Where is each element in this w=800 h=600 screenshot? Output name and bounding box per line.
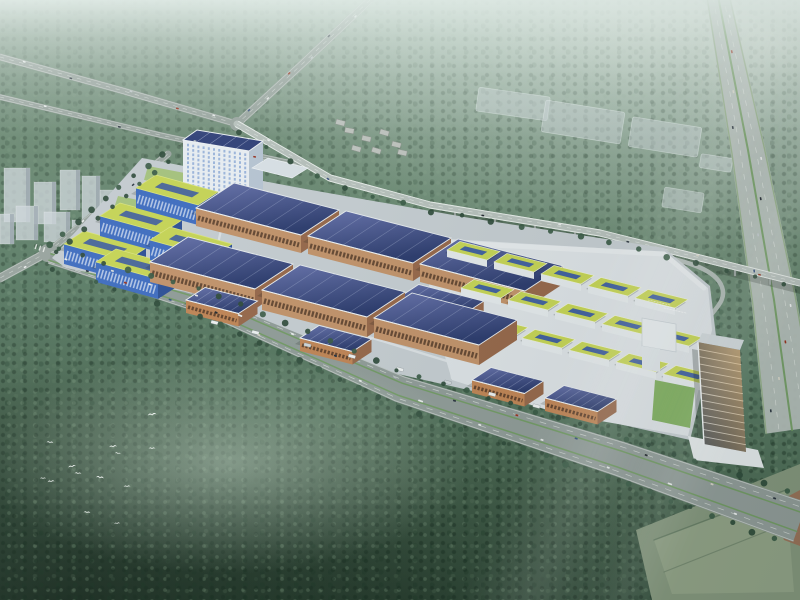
street-tree	[693, 260, 699, 266]
aerial-rendering: Aerial rendering of a solar-roofed indus…	[0, 0, 800, 600]
street-tree	[533, 410, 538, 415]
street-tree	[50, 267, 55, 272]
village-house	[351, 145, 361, 152]
street-tree	[584, 468, 589, 473]
city-block-shade	[34, 206, 38, 240]
street-tree	[95, 216, 100, 221]
street-tree	[428, 209, 434, 215]
street-tree	[125, 267, 132, 274]
street-tree	[257, 340, 263, 346]
street-tree	[724, 269, 728, 273]
street-tree	[237, 331, 243, 337]
village-house	[397, 149, 407, 156]
future-massing-block	[699, 154, 733, 173]
car	[770, 409, 772, 412]
village-house	[335, 119, 345, 126]
street-tree	[67, 238, 73, 244]
street-tree	[605, 474, 611, 480]
street-tree	[171, 280, 176, 285]
street-tree	[624, 437, 630, 443]
street-tree	[282, 320, 289, 327]
street-tree	[197, 286, 201, 290]
tower-sunlit-glass	[698, 342, 746, 452]
street-tree	[486, 396, 490, 400]
street-tree	[601, 431, 606, 436]
village-house	[345, 127, 355, 133]
street-tree	[216, 293, 222, 299]
street-tree	[197, 314, 203, 320]
street-tree	[460, 213, 465, 218]
street-tree	[647, 488, 653, 494]
street-tree	[715, 465, 722, 472]
annex-wing	[642, 346, 660, 372]
street-tree	[548, 229, 553, 234]
street-tree	[636, 246, 641, 251]
street-tree	[94, 280, 98, 284]
street-tree	[145, 163, 151, 169]
courtyard-lawn	[652, 380, 695, 428]
street-tree	[152, 170, 158, 176]
street-tree	[260, 311, 266, 317]
crosswalk-bar	[34, 244, 37, 249]
street-tree	[488, 219, 494, 225]
street-tree	[441, 381, 446, 386]
street-tree	[287, 158, 293, 164]
street-tree	[80, 253, 85, 258]
street-tree	[124, 194, 129, 199]
street-tree	[70, 272, 76, 278]
future-massing-block	[541, 100, 625, 144]
street-tree	[342, 185, 348, 191]
road-surface	[237, 0, 370, 124]
street-tree	[772, 536, 777, 541]
street-tree	[154, 300, 160, 306]
street-tree	[749, 529, 756, 536]
street-tree	[672, 452, 677, 457]
street-tree	[781, 282, 786, 287]
street-tree	[502, 441, 506, 445]
street-tree	[175, 306, 179, 310]
street-tree	[112, 287, 116, 291]
street-tree	[785, 488, 790, 493]
street-tree	[46, 241, 53, 248]
street-tree	[116, 185, 121, 190]
street-tree	[669, 499, 674, 504]
street-tree	[238, 301, 243, 306]
village-house	[379, 129, 389, 136]
street-tree	[131, 173, 136, 178]
street-tree	[148, 273, 154, 279]
street-tree	[508, 401, 513, 406]
street-tree	[60, 231, 66, 237]
street-tree	[305, 329, 310, 334]
street-tree	[736, 472, 743, 479]
street-tree	[373, 357, 380, 364]
street-tree	[132, 294, 138, 300]
ground-mist	[0, 350, 475, 574]
street-tree	[315, 173, 320, 178]
street-tree	[352, 348, 357, 353]
street-tree	[166, 159, 171, 164]
street-tree	[103, 196, 109, 202]
street-tree	[482, 432, 487, 437]
street-tree	[578, 233, 584, 239]
street-tree	[544, 453, 549, 458]
street-tree	[761, 480, 768, 487]
street-tree	[688, 505, 692, 509]
street-tree	[417, 374, 422, 379]
village-house	[361, 135, 371, 142]
street-tree	[217, 322, 223, 328]
scene-canvas	[0, 0, 800, 600]
street-tree	[555, 415, 561, 421]
street-tree	[394, 368, 398, 372]
street-tree	[692, 459, 697, 464]
street-tree	[709, 513, 715, 519]
street-tree	[730, 520, 735, 525]
street-tree	[519, 224, 525, 230]
street-tree	[264, 145, 268, 149]
future-massing-block	[476, 87, 551, 121]
street-tree	[753, 275, 757, 279]
street-tree	[75, 219, 82, 226]
street-tree	[81, 226, 87, 232]
street-tree	[626, 481, 632, 487]
future-massing-block	[662, 187, 705, 213]
street-tree	[236, 129, 242, 135]
street-tree	[606, 240, 612, 246]
street-tree	[88, 206, 95, 213]
city-block-shade	[76, 170, 80, 210]
street-tree	[54, 250, 58, 254]
street-tree	[646, 443, 651, 448]
street-tree	[101, 261, 106, 266]
street-tree	[520, 445, 526, 451]
village-house	[371, 147, 381, 154]
street-tree	[328, 338, 334, 344]
street-tree	[110, 205, 115, 210]
city-block-shade	[10, 214, 14, 244]
street-tree	[464, 387, 470, 393]
street-tree	[663, 254, 670, 261]
street-tree	[137, 182, 141, 186]
street-tree	[562, 461, 569, 468]
street-tree	[578, 422, 582, 426]
village-house	[391, 141, 401, 148]
street-tree	[370, 195, 374, 199]
road-surface	[0, 57, 237, 124]
street-tree	[400, 200, 406, 206]
future-massing-block	[628, 117, 702, 158]
street-tree	[159, 151, 165, 157]
